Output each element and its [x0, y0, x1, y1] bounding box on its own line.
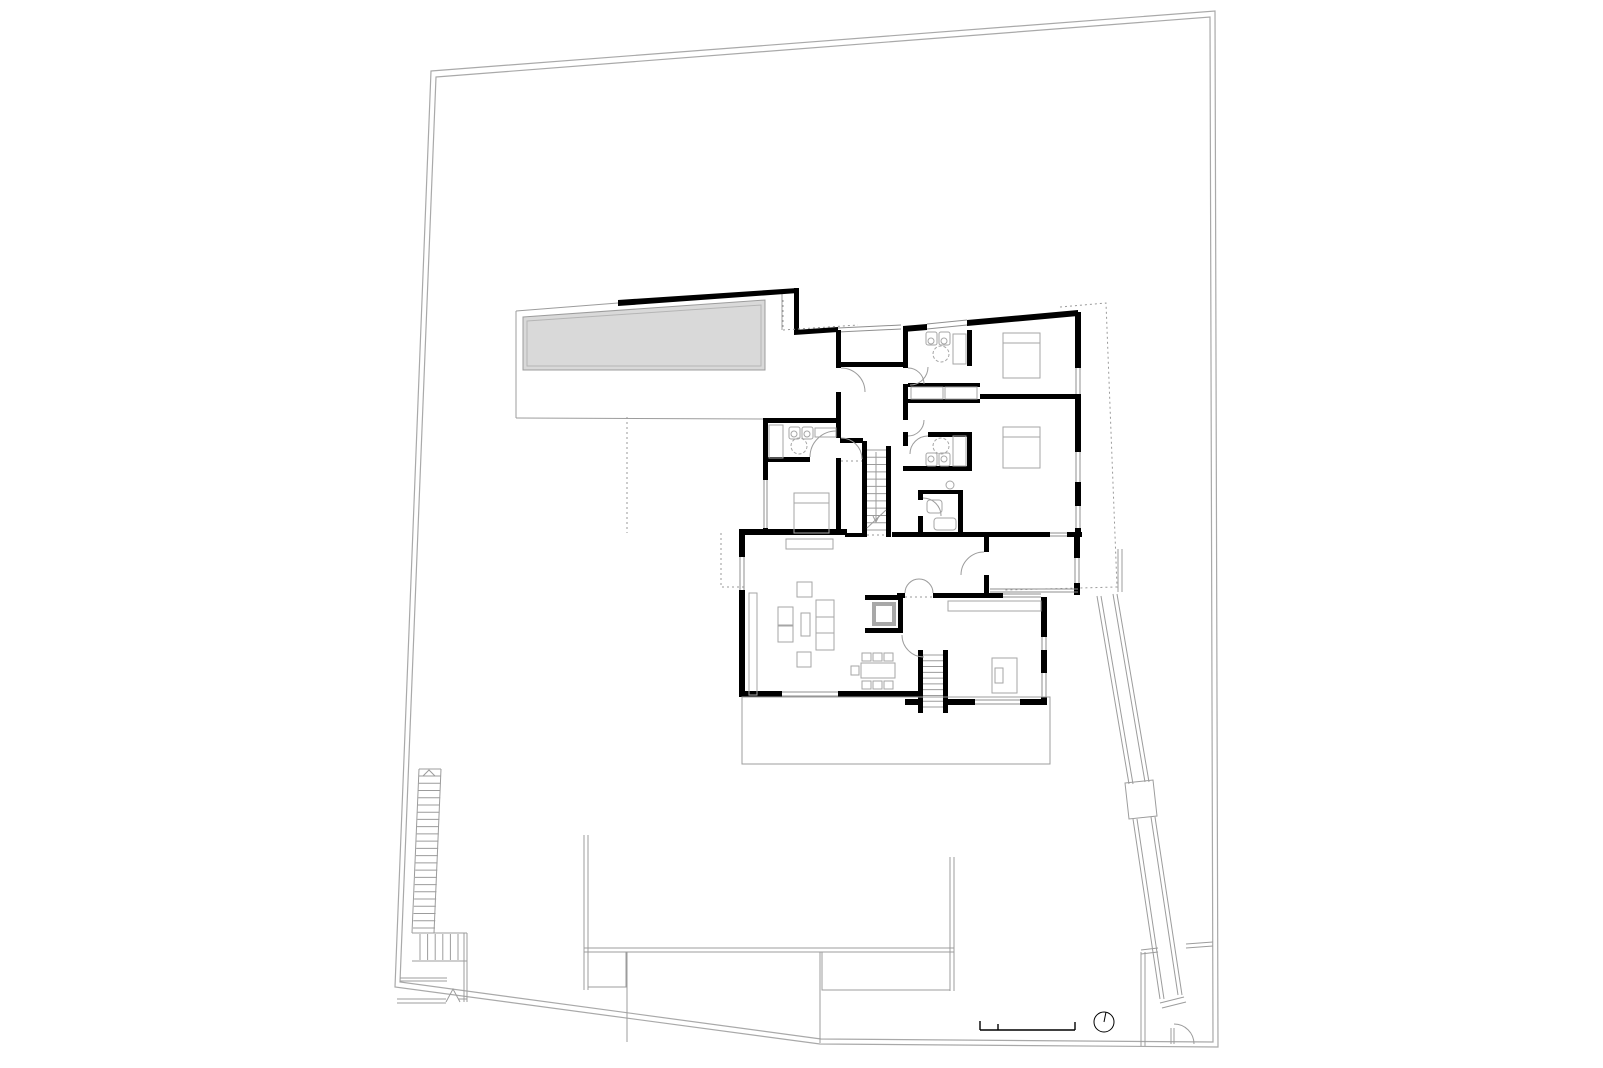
vestibule-west-wall-3: [836, 458, 841, 533]
garden-stair-treads: [923, 655, 943, 707]
exterior-stair-right-edge: [434, 769, 441, 933]
bedroom2-door-arc: [908, 420, 924, 436]
kitchen-door-arc-right: [919, 579, 933, 593]
bath1-door-arc: [910, 367, 928, 385]
pool-north-wall: [618, 288, 798, 306]
exterior-stair-left-edge: [412, 769, 419, 933]
dining-chair-3: [884, 653, 893, 661]
bath1-sink-bowl-2: [941, 338, 947, 344]
north-arrow-needle: [1104, 1012, 1106, 1022]
exterior-stair-treads: [413, 776, 441, 928]
stair-bottom-stub-wall: [845, 533, 867, 537]
vestibule-west-wall-2: [836, 392, 841, 438]
wc-right-wall: [958, 494, 963, 534]
bath2-sink-bowl-2: [941, 456, 947, 462]
lower-court-box-left: [588, 952, 626, 987]
kitchen-south-wall-a: [905, 699, 918, 705]
bedroom-divider-wall: [980, 394, 1078, 399]
bath2-sink-bowl-1: [928, 456, 934, 462]
closet-wall-lower: [908, 399, 980, 403]
bath1-wardrobe: [953, 334, 966, 364]
east-wall-lower-seg-1: [1074, 537, 1080, 558]
stair-landing-treads: [420, 934, 458, 960]
bedroom-wing-top-wall-b: [967, 310, 1078, 326]
bath3-shelf: [815, 428, 836, 437]
fireplace-bottom-wall: [865, 628, 903, 633]
master-suite-west-wall-1: [763, 418, 768, 460]
wing-bottom-wall-a: [892, 532, 1050, 537]
gate-enclosure-top-a2: [1141, 952, 1158, 954]
bed2: [1003, 427, 1040, 468]
side-ramp-upper-edge-4: [1117, 594, 1149, 782]
east-room-west-wall-b: [984, 575, 989, 595]
dining-chair-5: [873, 681, 882, 689]
wc-bidet: [934, 518, 956, 530]
east-wall-seg-3: [1075, 482, 1081, 506]
master-suite-top-wall: [763, 418, 841, 423]
dining-chair-4: [862, 681, 871, 689]
pool-deck-apron-edge: [516, 418, 763, 419]
side-ramp-upper-edge-3: [1113, 594, 1145, 782]
stair-left-wall: [862, 441, 867, 537]
living-south-wall-a: [739, 691, 782, 697]
living-side-table-bottom: [797, 652, 811, 667]
gate-door-arc: [1174, 1024, 1194, 1044]
bath2-right-wall: [967, 436, 972, 466]
gate-enclosure-top-b2: [1186, 946, 1213, 948]
garden-stair-right-wall: [943, 650, 948, 713]
fireplace-top-wall: [865, 595, 903, 600]
living-north-wall: [739, 529, 847, 535]
east-room-west-wall-a: [984, 537, 989, 552]
side-ramp-landing: [1125, 780, 1157, 819]
living-sofa: [816, 600, 834, 650]
side-ramp-end-cap-b: [1162, 1002, 1186, 1008]
wing-top-window-a: [927, 320, 967, 324]
pool-water: [523, 300, 765, 370]
bath3-door-arc: [810, 431, 836, 457]
dining-chair-2: [873, 653, 882, 661]
master-bed: [794, 493, 829, 533]
bath2-wardrobe: [953, 436, 966, 466]
closet-box-2: [945, 387, 977, 399]
kitchen-island-sink: [995, 668, 1003, 683]
kitchen-east-wall-1: [1041, 597, 1047, 637]
fireplace-insert: [874, 604, 894, 624]
living-coffee-table: [801, 613, 810, 636]
dining-chair-7: [851, 666, 859, 675]
corridor-east-wall-3: [903, 436, 908, 446]
corridor-east-wall-2: [903, 384, 908, 420]
bedroom1-door-arc: [908, 368, 924, 384]
dining-chair-6: [884, 681, 893, 689]
corridor-east-wall-1: [903, 326, 908, 368]
vestibule-north-window-b: [838, 329, 901, 332]
living-side-table-top: [797, 582, 812, 597]
living-west-wall-1: [739, 535, 745, 557]
bath3-counter: [769, 425, 783, 458]
gate-enclosure-top-a1: [1141, 948, 1158, 950]
site-plan-drawing: [0, 0, 1603, 1068]
bath2-top-wall-a: [903, 432, 908, 437]
side-ramp-lower-edge-1: [1133, 819, 1160, 999]
living-armchair-2: [778, 626, 793, 642]
bed1: [1003, 333, 1040, 378]
kitchen-island: [992, 658, 1017, 693]
living-south-wall-b: [838, 691, 920, 697]
garden-stair-left-wall: [918, 650, 923, 713]
side-ramp-upper-edge-1: [1097, 596, 1129, 784]
bath1-toilet: [933, 346, 949, 362]
wc-left-wall-b: [918, 516, 923, 534]
bath2-toilet: [933, 438, 949, 454]
wc-top-wall: [918, 490, 963, 494]
wc-basin: [946, 481, 954, 489]
stair-right-wall: [886, 446, 891, 537]
wc-left-wall-a: [918, 494, 923, 500]
floor-plan-page: [0, 0, 1603, 1068]
wing-bottom-wall-b: [1067, 532, 1082, 537]
roof-overhang-dash-east: [1005, 303, 1117, 590]
fireplace-right-wall: [898, 600, 903, 628]
kitchen-counter: [948, 601, 1041, 611]
living-west-wall-2: [739, 590, 745, 697]
kitchen-south-wall-b: [948, 699, 975, 705]
dining-table: [861, 663, 895, 678]
east-wall-seg-2: [1075, 394, 1081, 452]
house-nw-corner-wall-h: [794, 327, 838, 335]
bath3-sink-bowl-1: [791, 431, 797, 437]
bath2-bottom-wall: [903, 466, 972, 471]
vestibule-north-window-a: [838, 325, 901, 328]
wing-top-window-b: [927, 325, 967, 329]
dining-chair-1: [862, 653, 871, 661]
bath2-door-arc: [910, 436, 928, 454]
kitchen-north-wall-b: [933, 593, 1003, 598]
living-armchair-1: [778, 607, 793, 625]
bath1-sink-bowl-1: [928, 338, 934, 344]
kitchen-east-wall-3: [1041, 697, 1047, 705]
exterior-stair-up-chevron: [423, 770, 435, 776]
bath3-shower: [791, 438, 807, 454]
living-sideboard: [786, 539, 833, 549]
south-terrace: [742, 697, 1050, 764]
entry-door-arc: [841, 368, 865, 392]
closet-wall-upper: [908, 383, 980, 387]
lower-court-box-right: [822, 952, 950, 990]
kitchen-east-wall-2: [1041, 650, 1047, 673]
house-nw-corner-wall-v: [794, 288, 799, 333]
side-ramp-upper-edge-2: [1101, 596, 1133, 784]
closet-box-1: [911, 387, 943, 399]
pool-deck-top-edge: [516, 303, 618, 311]
gate-enclosure-top-b1: [1186, 942, 1213, 944]
vestibule-south-wall: [836, 362, 908, 367]
living-bench: [749, 593, 757, 695]
bath3-sink-bowl-2: [804, 431, 810, 437]
east-room-door-arc: [961, 552, 984, 575]
bath1-right-wall: [967, 330, 972, 366]
master-suite-west-wall-2: [763, 460, 768, 480]
east-wall-seg-1: [1075, 312, 1081, 368]
kitchen-door-arc-left: [905, 579, 919, 593]
